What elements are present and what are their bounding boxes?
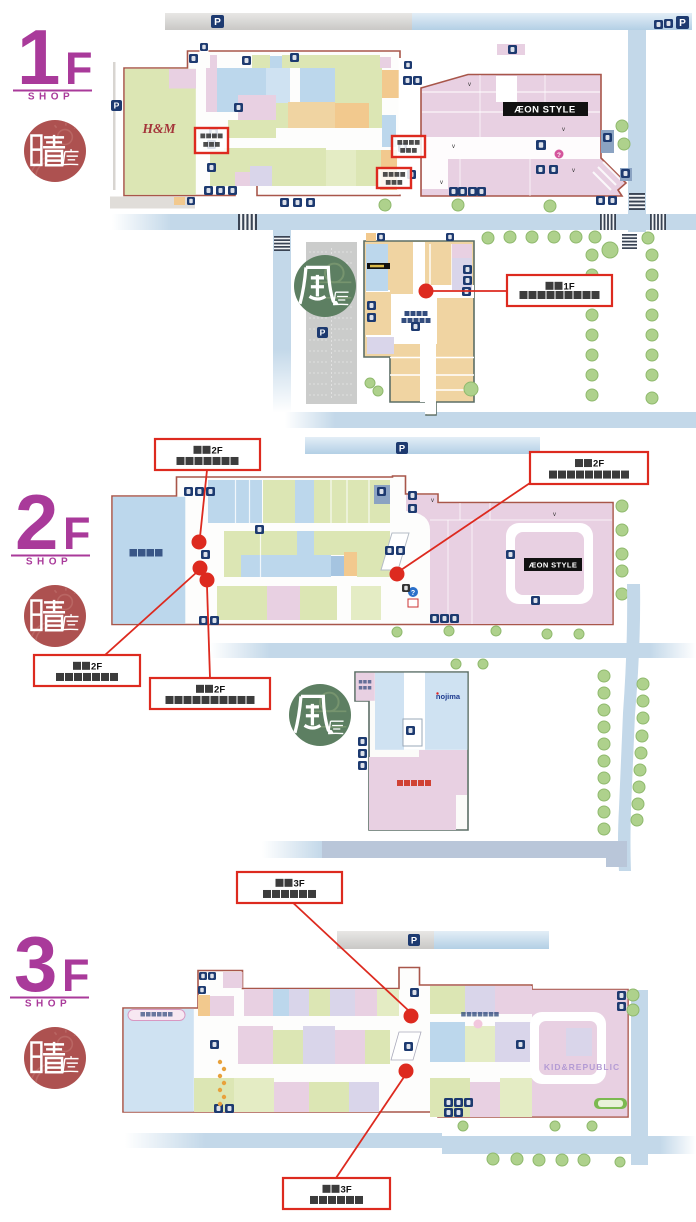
svg-text:3F: 3F [294,878,305,889]
svg-text:F: F [65,43,93,94]
svg-text:v: v [572,168,575,174]
svg-text:2: 2 [15,478,58,566]
svg-text:v: v [562,127,565,133]
svg-text:v: v [452,144,455,150]
svg-text:SHOP: SHOP [26,557,72,568]
svg-text:v: v [468,82,471,88]
svg-text:H&M: H&M [141,121,176,136]
svg-text:P: P [214,17,221,28]
svg-text:nojima: nojima [436,692,461,701]
svg-text:?: ? [557,152,561,159]
svg-text:F: F [63,508,91,559]
svg-text:P: P [679,18,686,29]
svg-text:SHOP: SHOP [25,999,71,1010]
svg-text:v: v [440,180,443,186]
svg-text:3F: 3F [341,1184,352,1195]
svg-text:P: P [320,328,326,338]
svg-text:2F: 2F [214,684,225,695]
svg-text:KID&REPUBLIC: KID&REPUBLIC [544,1062,620,1072]
svg-text:P: P [399,443,405,453]
svg-text:SHOP: SHOP [28,92,74,103]
svg-text:3: 3 [14,920,57,1008]
svg-text:2F: 2F [593,459,604,470]
svg-text:?: ? [411,590,415,597]
svg-text:1F: 1F [564,281,575,292]
svg-text:1: 1 [17,13,60,101]
svg-text:ÆON STYLE: ÆON STYLE [529,561,578,570]
svg-text:F: F [62,950,90,1001]
svg-text:v: v [431,498,434,504]
svg-text:v: v [553,512,556,518]
svg-text:P: P [411,935,417,945]
svg-text:P: P [114,101,120,111]
svg-text:ÆON STYLE: ÆON STYLE [514,105,576,116]
svg-text:2F: 2F [91,661,102,672]
svg-text:2F: 2F [212,445,223,456]
